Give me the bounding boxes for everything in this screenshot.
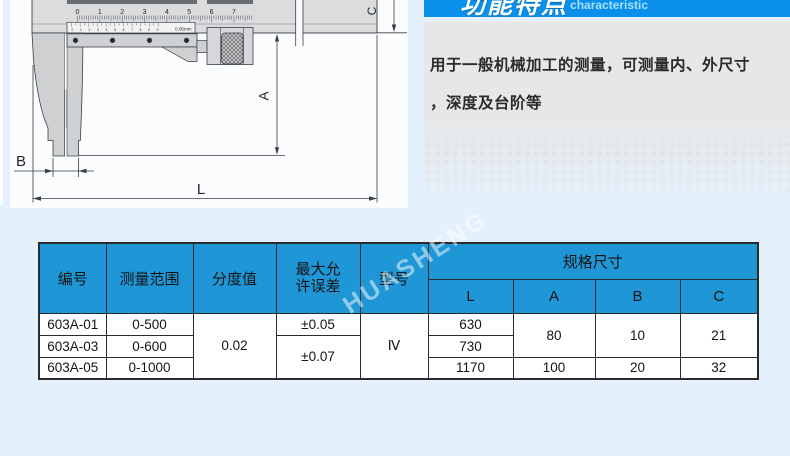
moving-jaw bbox=[67, 33, 83, 156]
svg-text:1: 1 bbox=[98, 9, 102, 16]
caliper-diagram-panel: 01234567 0 1 2 3 4 5 6 7 8 9 0 0.05mm bbox=[10, 0, 408, 208]
vernier-resolution-label: 0.05mm bbox=[175, 27, 192, 32]
header-number: 编号 bbox=[39, 243, 106, 313]
svg-text:3: 3 bbox=[143, 9, 147, 16]
cell-range: 0-500 bbox=[106, 313, 193, 335]
feature-subtitle: characteristic bbox=[570, 0, 648, 12]
cell-l: 1170 bbox=[428, 357, 513, 379]
cell-l: 630 bbox=[428, 313, 513, 335]
header-range: 测量范围 bbox=[106, 243, 193, 313]
cell-range: 0-600 bbox=[106, 335, 193, 357]
cell-id: 603A-05 bbox=[39, 357, 106, 379]
jaw-tip-gap bbox=[65, 128, 67, 156]
dimension-a-label: A bbox=[257, 91, 272, 100]
svg-text:5: 5 bbox=[187, 9, 191, 16]
slider-screw bbox=[73, 38, 78, 43]
cell-l: 730 bbox=[428, 335, 513, 357]
slider-lip bbox=[162, 47, 197, 62]
header-model: 型号 bbox=[360, 243, 428, 313]
cell-id: 603A-03 bbox=[39, 335, 106, 357]
dimension-l-label: L bbox=[197, 181, 205, 198]
wheel-top-cut bbox=[207, 0, 253, 4]
cell-graduation: 0.02 bbox=[193, 313, 276, 379]
feature-title: 功能特点 bbox=[460, 0, 568, 17]
product-spec-page: { "page": { "bg_color": "#e4f1fc" }, "di… bbox=[0, 0, 790, 456]
table-row: 603A-01 0-500 0.02 ±0.05 Ⅳ 630 80 10 21 bbox=[39, 313, 758, 335]
header-size-a: A bbox=[513, 279, 595, 313]
svg-text:0: 0 bbox=[76, 9, 80, 16]
svg-text:2: 2 bbox=[120, 9, 124, 16]
slider-screw bbox=[147, 38, 152, 43]
feature-title-bar: 功能特点characteristic bbox=[424, 0, 790, 17]
cell-error: ±0.05 bbox=[276, 313, 360, 335]
cell-a: 100 bbox=[513, 357, 595, 379]
cell-model: Ⅳ bbox=[360, 313, 428, 379]
header-max-error: 最大允 许误差 bbox=[276, 243, 360, 313]
feature-description-line1: 用于一般机械加工的测量，可测量内、外尺寸 bbox=[430, 47, 790, 85]
thumb-wheel bbox=[222, 33, 244, 64]
slider-plate bbox=[67, 34, 197, 47]
header-size-l: L bbox=[428, 279, 513, 313]
header-graduation: 分度值 bbox=[193, 243, 276, 313]
svg-text:7: 7 bbox=[232, 9, 236, 16]
page-edge-strip bbox=[0, 0, 3, 205]
fixed-jaw bbox=[32, 33, 65, 156]
cell-b: 20 bbox=[595, 357, 680, 379]
caliper-diagram: 01234567 0 1 2 3 4 5 6 7 8 9 0 0.05mm bbox=[10, 0, 408, 208]
dimension-b-label: B bbox=[16, 153, 26, 170]
header-max-error-line1: 最大允 bbox=[277, 261, 360, 278]
cell-a: 80 bbox=[513, 313, 595, 357]
dimension-b: B bbox=[14, 153, 94, 177]
spec-table: 编号 测量范围 分度值 最大允 许误差 型号 规格尺寸 L A B C 603A… bbox=[38, 242, 759, 380]
header-max-error-line2: 许误差 bbox=[277, 278, 360, 295]
svg-text:6: 6 bbox=[210, 9, 214, 16]
cell-b: 10 bbox=[595, 313, 680, 357]
vernier-plate: 0 1 2 3 4 5 6 7 8 9 0 0.05mm bbox=[67, 22, 195, 33]
cell-c: 21 bbox=[680, 313, 758, 357]
header-size-b: B bbox=[595, 279, 680, 313]
cell-c: 32 bbox=[680, 357, 758, 379]
svg-text:4: 4 bbox=[165, 9, 169, 16]
feature-description-panel: 用于一般机械加工的测量，可测量内、外尺寸 ，深度及台阶等 bbox=[424, 22, 790, 204]
beam-break bbox=[296, 0, 303, 46]
header-size-c: C bbox=[680, 279, 758, 313]
cell-id: 603A-01 bbox=[39, 313, 106, 335]
dimension-c-label: C bbox=[365, 6, 379, 15]
slider-top-cut bbox=[67, 0, 197, 4]
cell-range: 0-1000 bbox=[106, 357, 193, 379]
slider-screw bbox=[110, 38, 115, 43]
cell-error: ±0.07 bbox=[276, 335, 360, 379]
header-size-group: 规格尺寸 bbox=[428, 243, 758, 279]
feature-description-line2: ，深度及台阶等 bbox=[430, 85, 790, 123]
jaw-slot bbox=[65, 34, 67, 90]
dimension-l: L bbox=[33, 35, 377, 203]
slider-screw bbox=[184, 38, 189, 43]
